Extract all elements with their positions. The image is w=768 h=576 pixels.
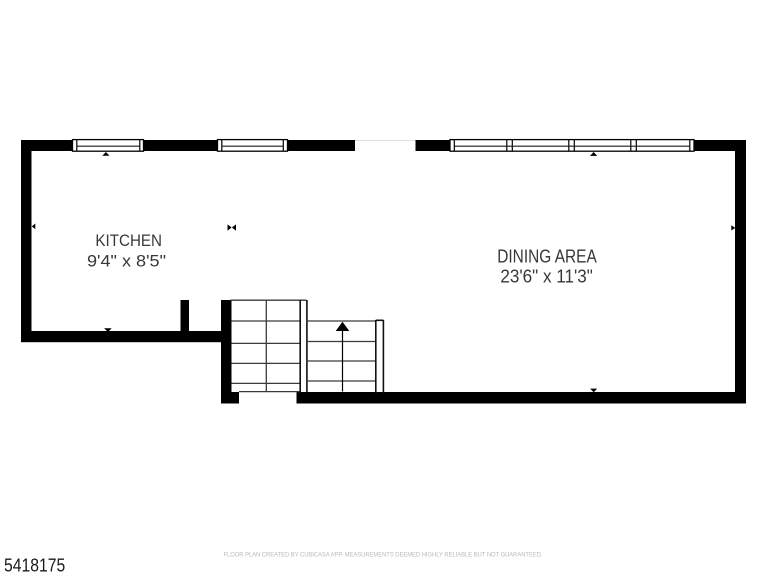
svg-text:9'4" x 8'5": 9'4" x 8'5"	[87, 251, 166, 270]
svg-text:FLOOR PLAN CREATED BY CUBICASA: FLOOR PLAN CREATED BY CUBICASA APP. MEAS…	[224, 552, 543, 559]
svg-text:5418175: 5418175	[4, 555, 65, 576]
svg-text:KITCHEN: KITCHEN	[95, 231, 162, 250]
svg-text:23'6" x 11'3": 23'6" x 11'3"	[500, 266, 592, 286]
svg-text:DINING AREA: DINING AREA	[497, 246, 597, 266]
